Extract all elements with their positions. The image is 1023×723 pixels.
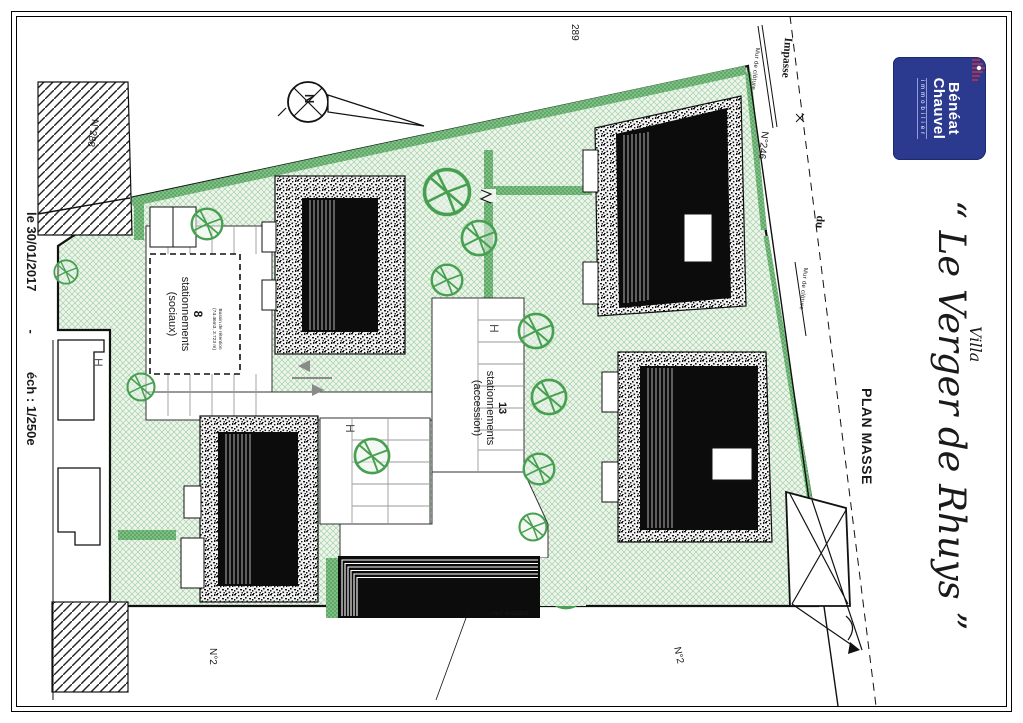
sheet-frame-inner <box>16 16 1007 707</box>
plan-sheet: le 30/01/2017 - éch : 1/250e Impasse du … <box>0 0 1023 723</box>
